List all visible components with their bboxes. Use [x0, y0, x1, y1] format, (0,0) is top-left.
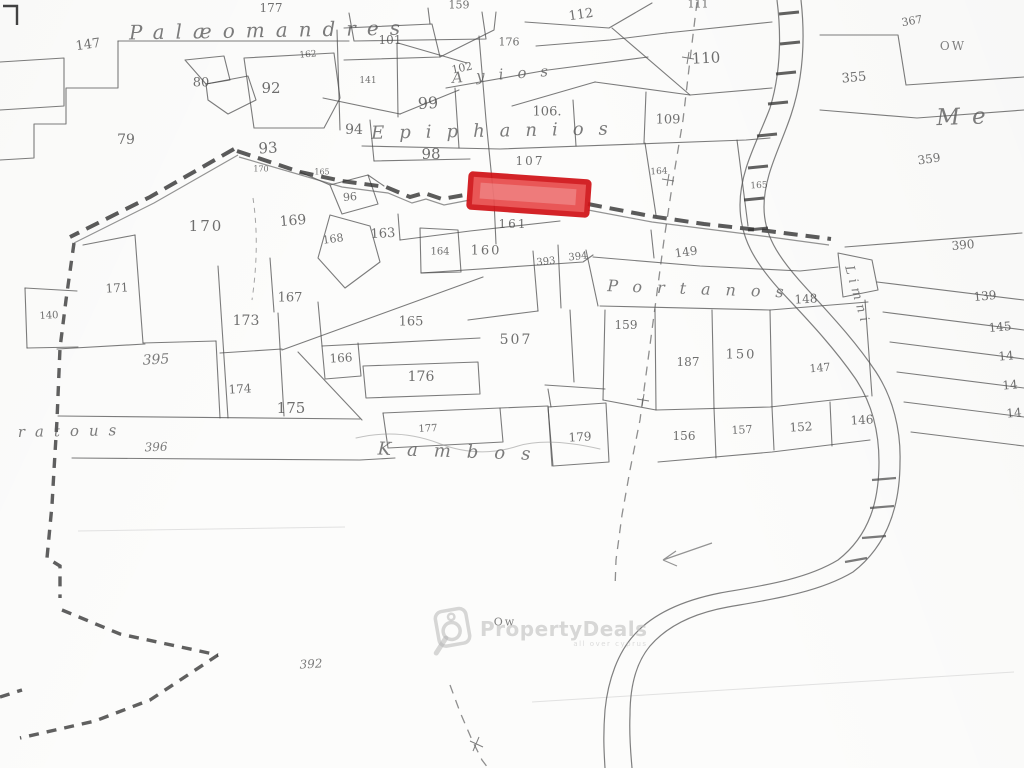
plot-number-146-67: 146: [850, 412, 874, 427]
plot-number-109-18: 109: [656, 113, 681, 128]
plot-number-392-69: 392: [299, 656, 323, 671]
plot-number-187-55: 187: [677, 355, 700, 369]
plot-number-167-49: 167: [278, 291, 303, 306]
plot-number-150-56: 150: [726, 348, 757, 363]
plot-number-173-50: 173: [233, 313, 260, 329]
propertydeals-logo-icon: [426, 603, 478, 663]
plot-number-170-30: 170: [189, 217, 224, 235]
plot-number-162-8: 162: [299, 49, 317, 60]
plot-number-14-45: 14: [1002, 377, 1018, 392]
plot-number-160-36: 160: [471, 244, 502, 259]
plot-number-164-25: 164: [650, 167, 668, 178]
plot-number-176-59: 176: [408, 369, 435, 385]
plot-number-156-64: 156: [673, 429, 696, 443]
plot-number-396-68: 396: [144, 440, 167, 455]
plot-number-159-52: 159: [615, 318, 638, 332]
plot-number-170-27: 170: [253, 165, 268, 174]
plot-number-94-21: 94: [345, 122, 363, 138]
plot-number-395-53: 395: [142, 351, 170, 368]
plot-number-152-66: 152: [789, 419, 813, 434]
plot-number-165-28: 165: [314, 168, 329, 177]
plot-number-390-40: 390: [951, 237, 975, 253]
plot-number-106.-17: 106.: [533, 105, 562, 120]
plot-number-110-11: 110: [691, 48, 721, 67]
plot-number-169-31: 169: [279, 212, 307, 230]
plot-number-161-34: 161: [499, 217, 528, 231]
plot-number-164-35: 164: [430, 247, 449, 258]
plot-number-179-63: 179: [568, 429, 592, 444]
plot-number-171-47: 171: [105, 280, 129, 295]
place-name-epiphanios: Epiphanios: [371, 118, 623, 143]
place-name-ratous: ratous: [18, 421, 127, 441]
plot-number-99-16: 99: [417, 93, 438, 113]
plot-number-393-37: 393: [536, 256, 556, 269]
plot-number-166-58: 166: [329, 350, 353, 365]
place-name-kambos: Kambos: [377, 439, 546, 466]
plot-number-394-38: 394: [568, 251, 588, 264]
plot-number-147-57: 147: [809, 361, 831, 376]
place-name-portanos: Portanos: [607, 276, 799, 302]
plot-number-107-23: 107: [516, 154, 545, 168]
plot-number-149-39: 149: [674, 243, 699, 260]
plot-number-147-0: 147: [75, 36, 102, 54]
plot-number-145-43: 145: [988, 319, 1012, 335]
plot-number-141-15: 141: [359, 76, 376, 86]
plot-number-111-4: 111: [688, 0, 709, 11]
plot-number-177-62: 177: [418, 423, 438, 435]
plot-number-174-60: 174: [228, 381, 252, 396]
plot-number-168-32: 168: [322, 231, 345, 247]
plot-number-98-22: 98: [421, 145, 440, 163]
well-mark-ow: OW: [940, 39, 966, 53]
plot-number-359-24: 359: [917, 150, 942, 167]
plot-number-355-12: 355: [841, 69, 867, 86]
plot-number-176-10: 176: [499, 36, 520, 49]
propertydeals-watermark: PropertyDeals all over cyprus: [426, 603, 648, 663]
plot-number-92-14: 92: [261, 79, 280, 97]
plot-number-163-33: 163: [370, 226, 396, 242]
plot-number-157-65: 157: [731, 423, 753, 437]
plot-number-96-29: 96: [342, 190, 357, 204]
place-name-me: Me: [936, 103, 998, 131]
plot-number-79-19: 79: [117, 132, 135, 148]
place-name-palaeomandres: Palæomandres: [129, 16, 411, 45]
plot-number-139-42: 139: [973, 288, 997, 304]
plot-number-159-2: 159: [449, 0, 470, 12]
plot-number-175-61: 175: [277, 399, 306, 417]
plot-number-177-1: 177: [260, 1, 283, 15]
plot-number-165-26: 165: [750, 181, 768, 192]
watermark-brand: PropertyDeals: [480, 619, 648, 639]
plot-number-367-5: 367: [901, 13, 924, 29]
plot-number-93-20: 93: [258, 139, 278, 158]
plot-number-14-44: 14: [998, 348, 1014, 363]
river-name-limni: Limni: [841, 264, 873, 328]
watermark-tagline: all over cyprus: [480, 640, 648, 648]
cadastral-map: 147177159112111367OW10116210217611035580…: [0, 0, 1024, 768]
plot-number-140-48: 140: [39, 310, 59, 322]
plot-number-507-54: 507: [500, 332, 533, 348]
plot-number-112-3: 112: [568, 6, 595, 24]
plot-number-165-51: 165: [399, 315, 424, 330]
plot-number-80-13: 80: [193, 76, 210, 91]
plot-number-14-46: 14: [1006, 405, 1022, 420]
